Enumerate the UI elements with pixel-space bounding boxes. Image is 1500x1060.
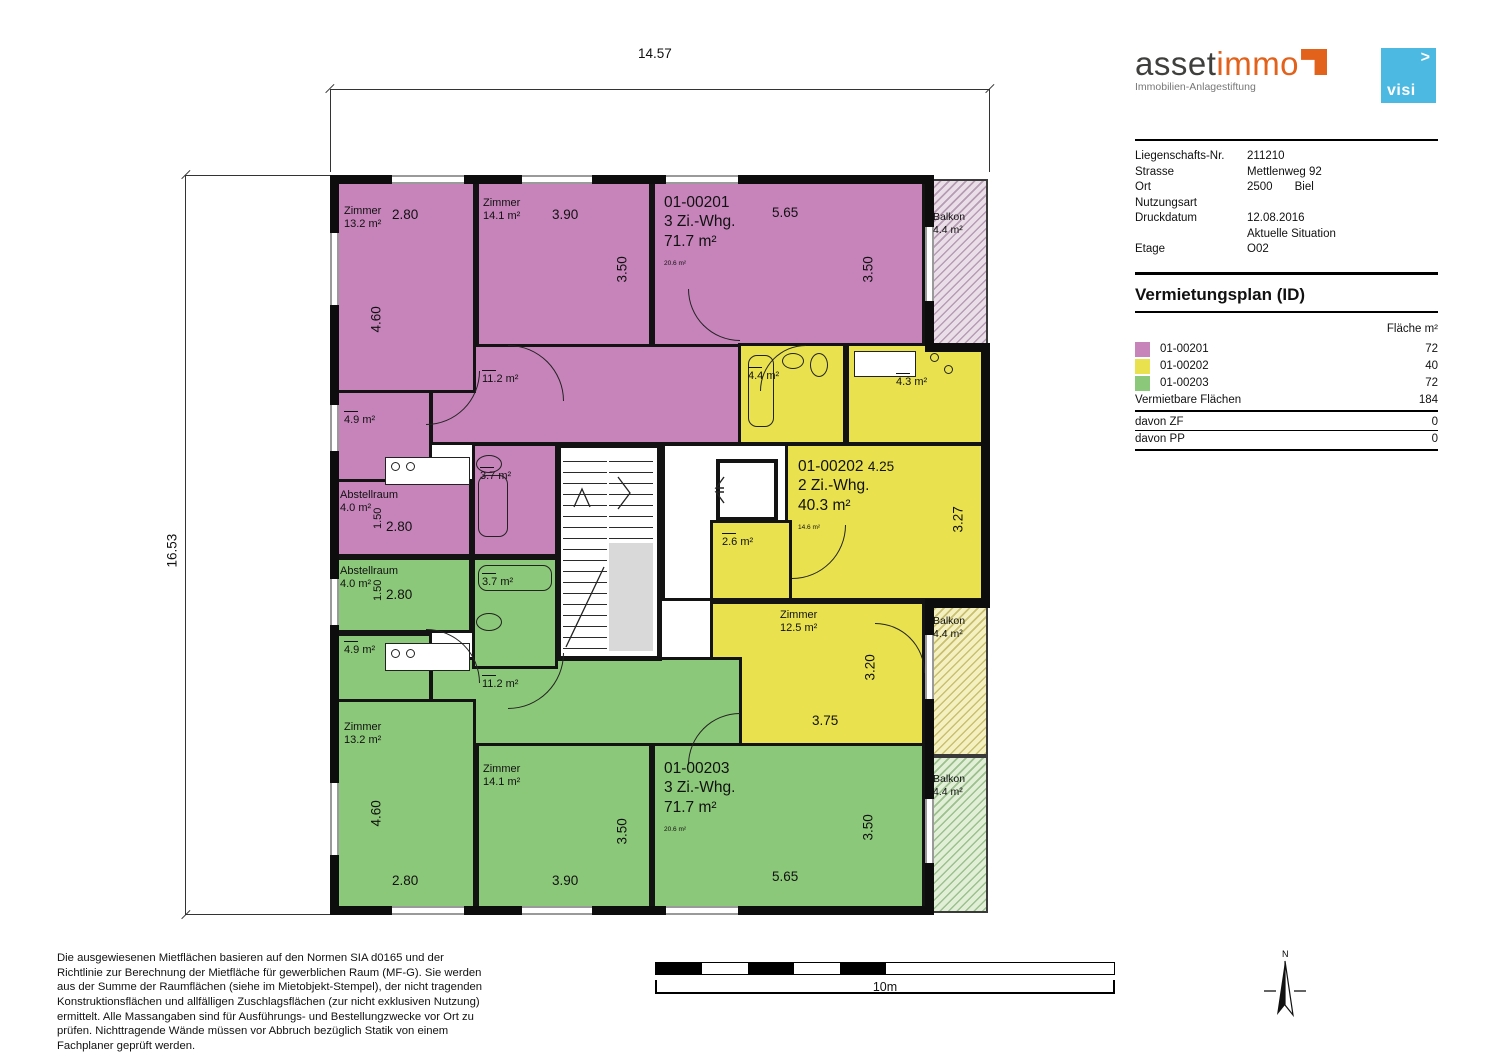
room-area: 12.5 m² bbox=[780, 622, 817, 634]
room-area: 4.3 m² bbox=[896, 376, 927, 388]
apartment-id: 01-00202 bbox=[798, 458, 864, 475]
room-name: Zimmer bbox=[483, 763, 520, 775]
stove-burner-icon bbox=[406, 462, 415, 471]
apartment-stamp: 20.6 m² bbox=[664, 826, 686, 833]
room-label: 4.3 m² bbox=[896, 373, 927, 389]
room-label: Zimmer 14.1 m² bbox=[483, 763, 520, 789]
scale-bar: 10m bbox=[655, 962, 1115, 994]
window bbox=[925, 635, 934, 699]
legend-zf-value: 0 bbox=[1432, 416, 1438, 428]
scale-bar-strip bbox=[655, 962, 1115, 975]
room-area: 4.4 m² bbox=[748, 370, 779, 382]
dim: 2.80 bbox=[392, 873, 418, 888]
dim: 3.50 bbox=[861, 243, 876, 283]
room-name: Balkon bbox=[933, 773, 965, 785]
info-row: Ort2500Biel bbox=[1135, 180, 1438, 196]
room-label: 3.7 m² bbox=[480, 467, 511, 483]
info-label: Druckdatum bbox=[1135, 211, 1247, 227]
legend-pp-label: davon PP bbox=[1135, 433, 1432, 445]
logo-text-immo: immo bbox=[1216, 45, 1299, 82]
room-area: 4.4 m² bbox=[933, 628, 963, 640]
info-value: Mettlenweg 92 bbox=[1247, 165, 1322, 181]
info-row: EtageO02 bbox=[1135, 242, 1438, 258]
room-label: Zimmer 13.2 m² bbox=[344, 721, 381, 747]
stove-burner-icon bbox=[406, 649, 415, 658]
stove-burner-icon bbox=[391, 649, 400, 658]
room-label: 11.2 m² bbox=[482, 675, 518, 691]
legend-area: 40 bbox=[1425, 360, 1438, 372]
window bbox=[330, 405, 339, 451]
room-area: 4.0 m² bbox=[340, 578, 371, 590]
room-area: 3.7 m² bbox=[482, 576, 513, 588]
dim: 2.80 bbox=[392, 207, 418, 222]
room-area: 4.4 m² bbox=[933, 224, 963, 236]
room-label: 4.9 m² bbox=[344, 411, 375, 427]
room-area: 14.1 m² bbox=[483, 210, 520, 222]
room-name: Abstellraum bbox=[340, 489, 398, 501]
room-name: Balkon bbox=[933, 615, 965, 627]
legend-total-label: Vermietbare Flächen bbox=[1135, 394, 1419, 406]
dim-top-line bbox=[330, 89, 990, 90]
kitchen-counter-icon bbox=[385, 457, 470, 485]
room-area: 14.1 m² bbox=[483, 776, 520, 788]
dim: 5.65 bbox=[772, 205, 798, 220]
room-area: 11.2 m² bbox=[482, 373, 518, 385]
legend-row: 01-00203 72 bbox=[1135, 375, 1438, 392]
apartment-type: 3 Zi.-Whg. bbox=[664, 213, 735, 230]
legend-total-value: 184 bbox=[1419, 394, 1438, 406]
room-label: Zimmer 14.1 m² bbox=[483, 197, 520, 223]
apartment-area: 71.7 m² bbox=[664, 799, 717, 816]
balcony-apt1 bbox=[929, 179, 988, 345]
divider bbox=[1135, 311, 1438, 313]
legend-swatch-apt2 bbox=[1135, 359, 1150, 374]
apartment-type: 2 Zi.-Whg. bbox=[798, 477, 869, 494]
window bbox=[666, 906, 738, 915]
dim-left-line bbox=[185, 175, 186, 915]
apartment-stamp: 14.6 m² bbox=[798, 524, 820, 531]
dim: 5.65 bbox=[772, 869, 798, 884]
apartment-id: 01-00201 bbox=[664, 194, 730, 211]
dim-top-value: 14.57 bbox=[638, 46, 672, 61]
info-label: Liegenschafts-Nr. bbox=[1135, 149, 1247, 165]
apartment-stamp: 20.6 m² bbox=[664, 260, 686, 267]
legend-pp-row: davon PP0 bbox=[1135, 431, 1438, 447]
info-value: 2500 bbox=[1247, 180, 1273, 196]
dim: 3.50 bbox=[615, 243, 630, 283]
legend-swatch-apt1 bbox=[1135, 342, 1150, 357]
info-value: O02 bbox=[1247, 242, 1269, 258]
scale-value: 10m bbox=[873, 980, 897, 994]
legend-column-header: Fläche m² bbox=[1135, 323, 1438, 335]
room-label: 11.2 m² bbox=[482, 370, 518, 386]
room-name: Zimmer bbox=[344, 205, 381, 217]
divider bbox=[1135, 272, 1438, 275]
info-row: Druckdatum12.08.2016 bbox=[1135, 211, 1438, 227]
info-label: Ort bbox=[1135, 180, 1247, 196]
room-name: Zimmer bbox=[483, 197, 520, 209]
dim: 4.25 bbox=[868, 459, 894, 474]
apartment-id: 01-00203 bbox=[664, 760, 730, 777]
balcony-label: Balkon 4.4 m² bbox=[933, 211, 965, 236]
room-zimmer-apt2 bbox=[710, 601, 925, 756]
toilet-icon bbox=[810, 353, 828, 377]
window bbox=[392, 175, 464, 184]
room-label: 2.6 m² bbox=[722, 533, 753, 549]
dim: 3.75 bbox=[812, 713, 838, 728]
window bbox=[392, 906, 464, 915]
room-area: 4.9 m² bbox=[344, 414, 375, 426]
window bbox=[925, 799, 934, 863]
dim: 3.90 bbox=[552, 207, 578, 222]
dim: 1.50 bbox=[372, 565, 384, 601]
logo-text-asset: asset bbox=[1135, 45, 1216, 82]
window bbox=[522, 175, 592, 184]
window bbox=[522, 906, 592, 915]
legend-total-row: Vermietbare Flächen184 bbox=[1135, 392, 1438, 408]
legend-area: 72 bbox=[1425, 343, 1438, 355]
stove-burner-icon bbox=[944, 365, 953, 374]
info-row: Aktuelle Situation bbox=[1135, 227, 1438, 243]
apartment-label-apt1: 01-00201 3 Zi.-Whg. 71.7 m² 20.6 m² bbox=[664, 193, 735, 271]
dim-ext bbox=[989, 90, 990, 172]
legend-row: 01-00202 40 bbox=[1135, 358, 1438, 375]
info-row: Liegenschafts-Nr.211210 bbox=[1135, 149, 1438, 165]
stair-arrow bbox=[560, 447, 660, 657]
apartment-type: 3 Zi.-Whg. bbox=[664, 779, 735, 796]
legend-id: 01-00202 bbox=[1160, 360, 1425, 372]
window bbox=[330, 233, 339, 305]
info-panel: assetimmo Immobilien-Anlagestiftung > vi… bbox=[1135, 45, 1438, 453]
dim: 4.60 bbox=[369, 293, 384, 333]
room-name: Zimmer bbox=[344, 721, 381, 733]
room-area: 4.4 m² bbox=[933, 786, 963, 798]
info-row: StrasseMettlenweg 92 bbox=[1135, 165, 1438, 181]
room-label: 4.9 m² bbox=[344, 641, 375, 657]
info-value: 211210 bbox=[1247, 149, 1285, 165]
visi-arrow-icon: > bbox=[1421, 49, 1430, 67]
apartment-label-apt3: 01-00203 3 Zi.-Whg. 71.7 m² 20.6 m² bbox=[664, 759, 735, 837]
balcony-label: Balkon 4.4 m² bbox=[933, 615, 965, 640]
dim: 2.80 bbox=[386, 587, 412, 602]
info-label bbox=[1135, 227, 1247, 243]
legend-row: 01-00201 72 bbox=[1135, 341, 1438, 358]
room-label: Zimmer 13.2 m² bbox=[344, 205, 381, 231]
logo-corner-icon bbox=[1301, 49, 1327, 75]
window bbox=[925, 227, 934, 301]
room-name: Abstellraum bbox=[340, 565, 398, 577]
north-arrow: N bbox=[1262, 945, 1308, 1036]
room-label: Abstellraum 4.0 m² bbox=[340, 489, 398, 515]
room-area: 3.7 m² bbox=[480, 470, 511, 482]
dim-ext bbox=[330, 90, 331, 172]
dim: 3.50 bbox=[615, 805, 630, 845]
info-value: Aktuelle Situation bbox=[1247, 227, 1336, 243]
divider bbox=[1135, 139, 1438, 141]
info-value2: Biel bbox=[1295, 180, 1314, 196]
legend-area: 72 bbox=[1425, 377, 1438, 389]
visi-logo: > visi bbox=[1381, 48, 1436, 103]
bathtub-icon bbox=[478, 475, 508, 537]
window bbox=[666, 175, 738, 184]
dim: 3.50 bbox=[861, 801, 876, 841]
info-label: Etage bbox=[1135, 242, 1247, 258]
dim: 4.60 bbox=[369, 787, 384, 827]
info-label: Nutzungsart bbox=[1135, 196, 1247, 212]
scale-bar-label: 10m bbox=[655, 980, 1115, 994]
window bbox=[330, 783, 339, 855]
legend-zf-row: davon ZF0 bbox=[1135, 414, 1438, 430]
disclaimer-text: Die ausgewiesenen Mietflächen basieren a… bbox=[57, 951, 485, 1054]
apartment-area: 71.7 m² bbox=[664, 233, 717, 250]
legend-swatch-apt3 bbox=[1135, 376, 1150, 391]
legend-pp-value: 0 bbox=[1432, 433, 1438, 445]
dim: 1.50 bbox=[372, 493, 384, 529]
legend-id: 01-00201 bbox=[1160, 343, 1425, 355]
dim-ext bbox=[186, 914, 330, 915]
room-label: 3.7 m² bbox=[482, 573, 513, 589]
dim: 3.20 bbox=[863, 641, 878, 681]
page: 14.57 16.53 bbox=[0, 0, 1500, 1060]
floor-plan: Zimmer 13.2 m² 2.80 4.60 Zimmer 14.1 m² … bbox=[330, 175, 990, 915]
dim: 3.90 bbox=[552, 873, 578, 888]
info-label: Strasse bbox=[1135, 165, 1247, 181]
room-area: 11.2 m² bbox=[482, 678, 518, 690]
wall-balcony-mid bbox=[925, 599, 990, 608]
elevator-door-icon bbox=[708, 475, 728, 505]
info-value: 12.08.2016 bbox=[1247, 211, 1305, 227]
info-row: Nutzungsart bbox=[1135, 196, 1438, 212]
divider bbox=[1135, 449, 1438, 451]
room-area: 13.2 m² bbox=[344, 734, 381, 746]
legend-zf-label: davon ZF bbox=[1135, 416, 1432, 428]
north-label: N bbox=[1282, 949, 1289, 959]
legend-id: 01-00203 bbox=[1160, 377, 1425, 389]
room-area: 4.0 m² bbox=[340, 502, 371, 514]
stove-burner-icon bbox=[930, 353, 939, 362]
legend-title: Vermietungsplan (ID) bbox=[1135, 285, 1438, 305]
sink-icon bbox=[476, 613, 502, 631]
dim: 2.80 bbox=[386, 519, 412, 534]
room-area: 4.9 m² bbox=[344, 644, 375, 656]
room-name: Balkon bbox=[933, 211, 965, 223]
dim-left-value: 16.53 bbox=[165, 524, 180, 568]
dim-ext bbox=[186, 175, 330, 176]
apartment-label-apt2: 01-00202 4.25 2 Zi.-Whg. 40.3 m² 14.6 m² bbox=[798, 457, 894, 535]
balcony-label: Balkon 4.4 m² bbox=[933, 773, 965, 798]
visi-label: visi bbox=[1387, 82, 1416, 100]
apartment-area: 40.3 m² bbox=[798, 497, 851, 514]
dim: 3.27 bbox=[951, 493, 966, 533]
room-area: 13.2 m² bbox=[344, 218, 381, 230]
divider bbox=[1135, 410, 1438, 412]
room-label: 4.4 m² bbox=[748, 367, 779, 383]
window bbox=[330, 579, 339, 625]
room-name: Zimmer bbox=[780, 609, 817, 621]
wall-right-outer bbox=[981, 343, 990, 606]
stove-burner-icon bbox=[391, 462, 400, 471]
room-label: Zimmer 12.5 m² bbox=[780, 609, 817, 635]
room-area: 2.6 m² bbox=[722, 536, 753, 548]
room-corridor-apt1 bbox=[430, 343, 742, 445]
